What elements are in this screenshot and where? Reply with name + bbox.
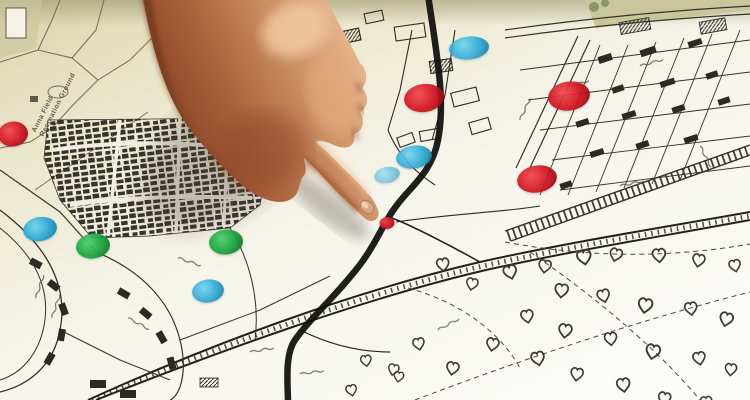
map-marker-green xyxy=(208,228,244,256)
map-marker-blue xyxy=(21,214,59,244)
map-marker-red xyxy=(515,162,559,196)
map-marker-blue xyxy=(373,164,402,185)
photo-of-map-with-pointing-hand: Anna Field Recreation Ground xyxy=(0,0,750,400)
map-marker-green xyxy=(308,52,350,85)
marker-layer: Anna Field Recreation Ground xyxy=(0,0,750,400)
map-marker-green xyxy=(74,231,111,260)
map-marker-blue xyxy=(448,34,490,61)
map-marker-blue xyxy=(191,277,226,304)
map-marker-red xyxy=(402,81,446,114)
map-marker-blue xyxy=(395,143,434,171)
map-marker-red xyxy=(379,216,395,229)
map-area-label: Anna Field Recreation Ground xyxy=(30,67,78,138)
map-marker-red xyxy=(546,79,592,114)
map-marker-red xyxy=(0,120,30,149)
